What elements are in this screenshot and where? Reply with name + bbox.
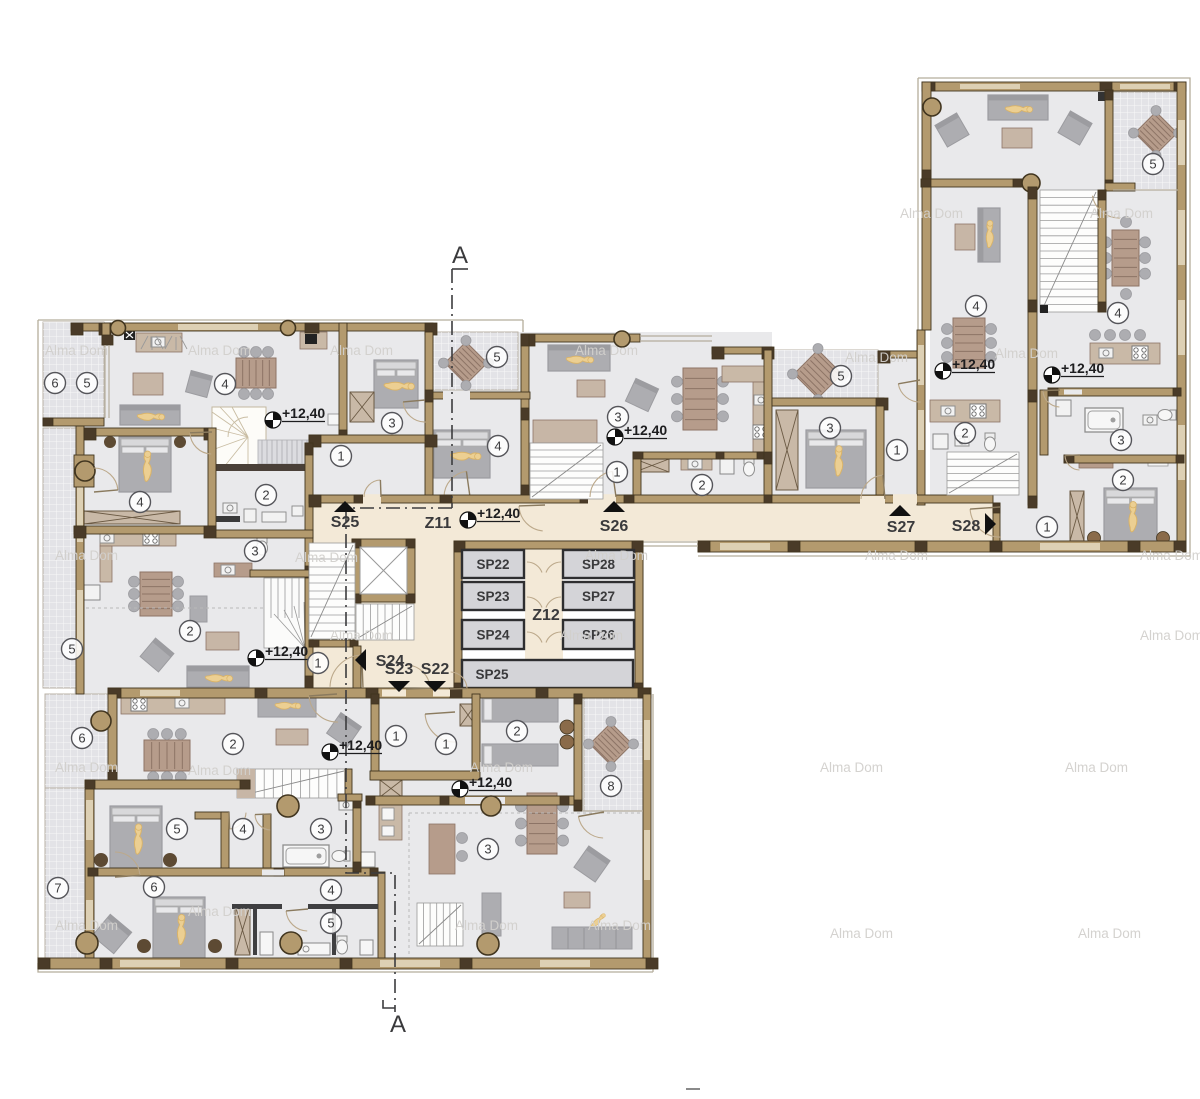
svg-text:7: 7 xyxy=(54,881,61,896)
svg-text:4: 4 xyxy=(494,439,501,454)
svg-text:A: A xyxy=(452,242,468,269)
svg-text:+12,40: +12,40 xyxy=(477,505,520,521)
svg-text:S28: S28 xyxy=(952,518,981,535)
svg-text:Z12: Z12 xyxy=(532,607,560,624)
svg-text:SP22: SP22 xyxy=(476,557,509,572)
svg-text:3: 3 xyxy=(1117,433,1124,448)
svg-text:Alma Dom: Alma Dom xyxy=(188,904,251,919)
svg-text:Alma Dom: Alma Dom xyxy=(45,343,108,358)
svg-text:6: 6 xyxy=(78,731,85,746)
svg-text:Alma Dom: Alma Dom xyxy=(820,760,883,775)
svg-text:Alma Dom: Alma Dom xyxy=(585,548,648,563)
svg-text:4: 4 xyxy=(239,822,246,837)
svg-text:Alma Dom: Alma Dom xyxy=(1078,926,1141,941)
svg-text:3: 3 xyxy=(317,822,324,837)
svg-text:5: 5 xyxy=(837,369,844,384)
svg-text:Alma Dom: Alma Dom xyxy=(1065,760,1128,775)
svg-text:SP27: SP27 xyxy=(582,589,615,604)
svg-text:1: 1 xyxy=(1043,520,1050,535)
svg-text:3: 3 xyxy=(826,421,833,436)
svg-text:Alma Dom: Alma Dom xyxy=(470,760,533,775)
svg-text:S27: S27 xyxy=(887,519,916,536)
svg-text:+12,40: +12,40 xyxy=(265,643,308,659)
svg-text:5: 5 xyxy=(327,916,334,931)
svg-text:Alma Dom: Alma Dom xyxy=(830,926,893,941)
svg-text:Alma Dom: Alma Dom xyxy=(455,918,518,933)
svg-text:Alma Dom: Alma Dom xyxy=(330,628,393,643)
svg-text:Alma Dom: Alma Dom xyxy=(55,760,118,775)
svg-text:2: 2 xyxy=(229,737,236,752)
svg-text:Alma Dom: Alma Dom xyxy=(55,918,118,933)
svg-text:S22: S22 xyxy=(421,661,450,678)
svg-text:S26: S26 xyxy=(600,518,629,535)
svg-text:1: 1 xyxy=(613,465,620,480)
svg-text:6: 6 xyxy=(51,376,58,391)
svg-text:Alma Dom: Alma Dom xyxy=(188,343,251,358)
svg-text:1: 1 xyxy=(442,737,449,752)
svg-text:Alma Dom: Alma Dom xyxy=(1090,206,1153,221)
svg-text:4: 4 xyxy=(972,299,979,314)
svg-text:5: 5 xyxy=(173,822,180,837)
svg-text:Alma Dom: Alma Dom xyxy=(560,628,623,643)
svg-text:Alma Dom: Alma Dom xyxy=(1140,628,1200,643)
svg-text:Alma Dom: Alma Dom xyxy=(588,918,651,933)
svg-text:+12,40: +12,40 xyxy=(952,356,995,372)
svg-text:+12,40: +12,40 xyxy=(1061,360,1104,376)
svg-text:Alma Dom: Alma Dom xyxy=(330,343,393,358)
svg-text:2: 2 xyxy=(1119,473,1126,488)
svg-text:4: 4 xyxy=(1114,306,1121,321)
svg-text:3: 3 xyxy=(614,410,621,425)
svg-text:SP24: SP24 xyxy=(476,628,510,643)
svg-text:Alma Dom: Alma Dom xyxy=(995,346,1058,361)
svg-text:Alma Dom: Alma Dom xyxy=(845,350,908,365)
svg-text:5: 5 xyxy=(1149,157,1156,172)
svg-text:+12,40: +12,40 xyxy=(469,774,512,790)
svg-text:3: 3 xyxy=(251,544,258,559)
svg-text:8: 8 xyxy=(607,779,614,794)
svg-text:5: 5 xyxy=(493,350,500,365)
svg-text:1: 1 xyxy=(392,729,399,744)
svg-text:2: 2 xyxy=(186,624,193,639)
svg-text:Alma Dom: Alma Dom xyxy=(865,548,928,563)
svg-text:Alma Dom: Alma Dom xyxy=(575,343,638,358)
svg-text:A: A xyxy=(390,1011,406,1038)
svg-text:4: 4 xyxy=(221,377,228,392)
svg-text:2: 2 xyxy=(513,724,520,739)
svg-text:S23: S23 xyxy=(385,661,414,678)
svg-text:+12,40: +12,40 xyxy=(624,422,667,438)
svg-text:Alma Dom: Alma Dom xyxy=(900,206,963,221)
svg-text:4: 4 xyxy=(327,883,334,898)
svg-text:+12,40: +12,40 xyxy=(282,405,325,421)
svg-text:Alma Dom: Alma Dom xyxy=(55,548,118,563)
svg-text:S25: S25 xyxy=(331,514,360,531)
svg-text:5: 5 xyxy=(68,642,75,657)
svg-text:SP25: SP25 xyxy=(475,667,509,682)
svg-text:3: 3 xyxy=(484,842,491,857)
svg-text:SP23: SP23 xyxy=(476,589,510,604)
svg-text:3: 3 xyxy=(388,416,395,431)
svg-text:4: 4 xyxy=(136,495,143,510)
svg-text:5: 5 xyxy=(83,376,90,391)
svg-text:2: 2 xyxy=(262,488,269,503)
svg-text:2: 2 xyxy=(698,478,705,493)
svg-text:Alma Dom: Alma Dom xyxy=(1140,548,1200,563)
svg-text:+12,40: +12,40 xyxy=(339,737,382,753)
svg-text:6: 6 xyxy=(150,880,157,895)
svg-text:1: 1 xyxy=(893,443,900,458)
svg-text:Z11: Z11 xyxy=(425,515,452,532)
svg-text:1: 1 xyxy=(337,449,344,464)
svg-text:2: 2 xyxy=(961,426,968,441)
svg-text:1: 1 xyxy=(314,656,321,671)
svg-text:Alma Dom: Alma Dom xyxy=(188,763,251,778)
svg-text:Alma Dom: Alma Dom xyxy=(295,550,358,565)
